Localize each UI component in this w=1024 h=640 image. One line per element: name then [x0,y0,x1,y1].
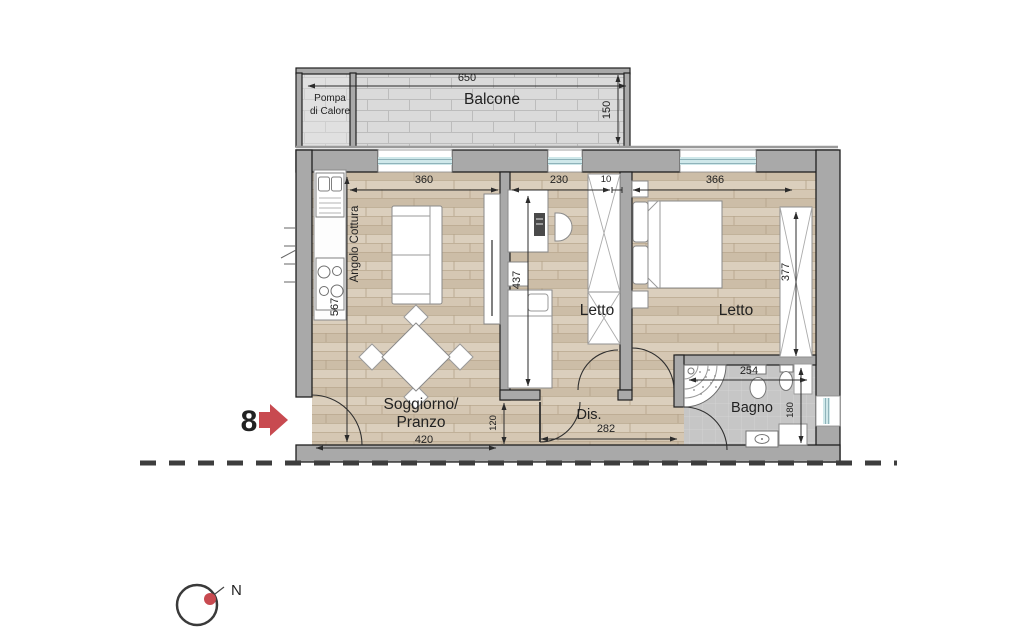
kitchen-sink [316,173,344,217]
kitchen-corner-label: Angolo Cottura [349,205,361,282]
window-bedroom1 [548,150,582,172]
washing-machine [779,424,807,445]
dim-balcony-width: 650 [458,72,476,84]
balcony-wall-right [624,73,630,147]
pillow [633,246,648,284]
dim-living-height: 567 [329,298,341,316]
compass-needle [215,587,224,594]
dim-hall-width: 282 [597,423,615,435]
washbasin [746,431,778,447]
window-living [378,150,452,172]
nightstand [632,181,648,197]
dim-bedroom1-height: 437 [511,271,523,289]
living-room-label-line2: Pranzo [396,414,445,431]
heat-pump-partition [350,73,356,147]
wall-hall-segment-1 [500,390,540,400]
monitor [534,213,545,236]
kitchen-corner [314,170,346,320]
compass-north-dot [204,593,216,605]
pillow [633,202,648,242]
balcony-label: Balcone [464,91,520,108]
wall-bedroom1-bedroom2 [620,172,632,390]
north-compass: N [177,582,242,625]
dim-wardrobe-height: 377 [780,263,792,281]
hall-label: Dis. [577,407,602,423]
dim-bath-width: 254 [740,365,758,377]
floor-plan-page: Balcone Pompa di Calore 650 150 [0,0,1024,640]
unit-number: 8 [241,405,258,438]
wall-top-pillar-3 [582,150,680,172]
bedroom2-label: Letto [719,302,753,319]
red-arrow-icon [259,404,288,436]
dim-bedroom2-width: 366 [706,174,724,186]
compass-circle [177,585,217,625]
window-bathroom [816,396,840,426]
bedroom1-label: Letto [580,302,614,319]
nightstand [632,291,648,308]
balcony-wall-left [296,73,302,147]
dim-living-width: 360 [415,174,433,186]
heat-pump-label-line2: di Calore [310,106,350,117]
party-wall-ticks [281,228,296,282]
single-bed [508,290,552,388]
heat-pump-label-line1: Pompa [314,93,346,104]
dim-passage: 120 [488,415,499,431]
dim-partition: 10 [601,174,612,185]
wall-top-pillar-2 [452,150,548,172]
balcony: Balcone Pompa di Calore 650 150 [296,68,630,147]
dim-living-bottom: 420 [415,434,433,446]
bath-niche [794,364,812,394]
wall-bathroom-left [674,355,684,407]
pillow [528,294,548,311]
bidet [780,365,794,391]
living-room-label-line1: Soggiorno/ [384,396,460,413]
floor-plan-canvas: Balcone Pompa di Calore 650 150 [0,0,1024,640]
north-label: N [231,582,242,599]
dim-balcony-depth: 150 [601,101,613,119]
unit-number-marker: 8 [241,404,288,438]
window-bedroom2 [680,150,756,172]
bathroom-label: Bagno [731,400,773,416]
tv-cabinet [484,194,500,324]
dim-bath-height: 180 [785,402,796,418]
dim-bedroom1-width: 230 [550,174,568,186]
sofa [392,206,442,304]
wall-left [296,150,312,397]
wall-hall-segment-2 [618,390,632,400]
